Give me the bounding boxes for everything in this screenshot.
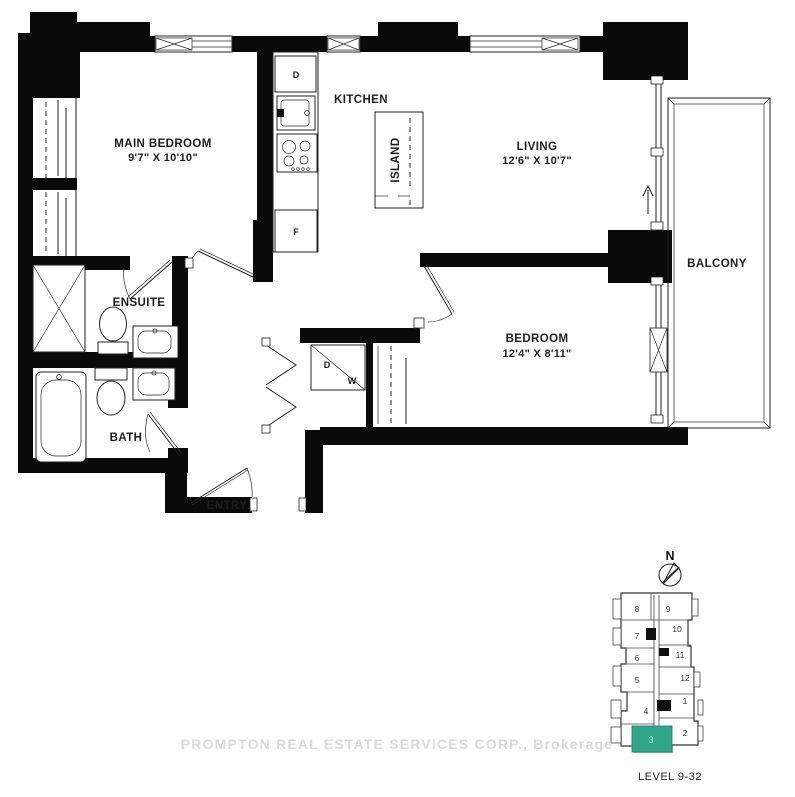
wall <box>168 448 188 473</box>
door-bedroom-icon <box>414 264 454 328</box>
closet-main-bedroom <box>33 98 77 256</box>
unit-2: 2 <box>683 728 688 738</box>
unit-4: 4 <box>644 706 649 716</box>
door-main-bedroom-icon <box>185 249 253 277</box>
entry-label: ENTRY <box>207 500 248 512</box>
wall <box>420 253 610 267</box>
wall <box>18 33 33 473</box>
wall <box>360 36 470 52</box>
sink-icon <box>277 96 315 130</box>
living-dims: 12'6" X 10'7" <box>502 155 572 167</box>
bedroom-dims: 12'4" X 8'11" <box>502 348 571 360</box>
window-icon <box>155 36 232 52</box>
bath-fixtures <box>36 368 175 462</box>
wall <box>608 230 672 283</box>
wall <box>18 36 155 52</box>
unit-9: 9 <box>666 604 671 614</box>
door-ensuite-icon <box>124 260 172 299</box>
unit-11: 11 <box>676 650 685 660</box>
unit-6: 6 <box>635 653 640 663</box>
washer-label: W <box>348 376 357 386</box>
dishwasher-label: D <box>293 70 300 80</box>
north-compass-icon: N <box>659 549 681 586</box>
ensuite-label: ENSUITE <box>113 297 166 309</box>
wall <box>300 328 420 343</box>
dryer-label: D <box>324 360 331 370</box>
main-bedroom-dims: 9'7" X 10'10" <box>128 152 198 164</box>
sink-icon <box>133 326 178 358</box>
bifold-door-icon <box>266 345 296 385</box>
balcony-label: BALCONY <box>687 258 747 270</box>
window-icon <box>470 36 580 52</box>
wall <box>603 22 688 80</box>
washer-dryer-icon <box>311 345 365 390</box>
brokerage-watermark: PROMPTON REAL ESTATE SERVICES CORP., Bro… <box>181 736 614 752</box>
wall <box>232 36 327 52</box>
shower-icon <box>33 265 85 352</box>
island-label: ISLAND <box>390 137 402 182</box>
living-label: LIVING <box>517 141 558 153</box>
bedroom-label: BEDROOM <box>506 333 569 345</box>
wall <box>165 473 187 513</box>
kitchen-label: KITCHEN <box>334 94 388 106</box>
unit-3: 3 <box>648 735 653 745</box>
level-label: LEVEL 9-32 <box>638 771 702 783</box>
floorplan-page: MAIN BEDROOM 9'7" X 10'10" KITCHEN ISLAN… <box>0 0 795 797</box>
bifold-door-icon <box>266 387 296 427</box>
unit-1: 1 <box>683 696 688 706</box>
wall <box>366 343 373 429</box>
toilet-icon <box>95 368 127 415</box>
unit-5: 5 <box>635 675 640 685</box>
bathtub-icon <box>36 372 86 462</box>
north-label: N <box>665 549 674 563</box>
unit-7: 7 <box>635 631 640 641</box>
window-icon <box>327 36 360 52</box>
bath-label: BATH <box>110 432 143 444</box>
window-icon <box>650 328 667 372</box>
keyplan: N <box>611 549 703 783</box>
wall <box>70 22 150 37</box>
unit-10: 10 <box>672 624 682 634</box>
toilet-icon <box>98 307 128 354</box>
sink-icon <box>133 368 175 400</box>
unit-12: 12 <box>680 673 690 683</box>
unit-8: 8 <box>635 604 640 614</box>
kitchen-counter <box>273 52 318 252</box>
ensuite-fixtures <box>33 265 178 358</box>
wall <box>320 427 688 445</box>
wall <box>305 430 323 513</box>
wall <box>253 220 273 282</box>
main-bedroom-label: MAIN BEDROOM <box>114 138 211 150</box>
closet-bedroom <box>378 346 406 424</box>
wall <box>378 22 458 37</box>
cooktop-icon <box>277 134 317 172</box>
room-labels: MAIN BEDROOM 9'7" X 10'10" KITCHEN ISLAN… <box>110 70 747 512</box>
fridge-label: F <box>293 227 299 237</box>
balcony-door-arrow-icon <box>643 186 653 214</box>
